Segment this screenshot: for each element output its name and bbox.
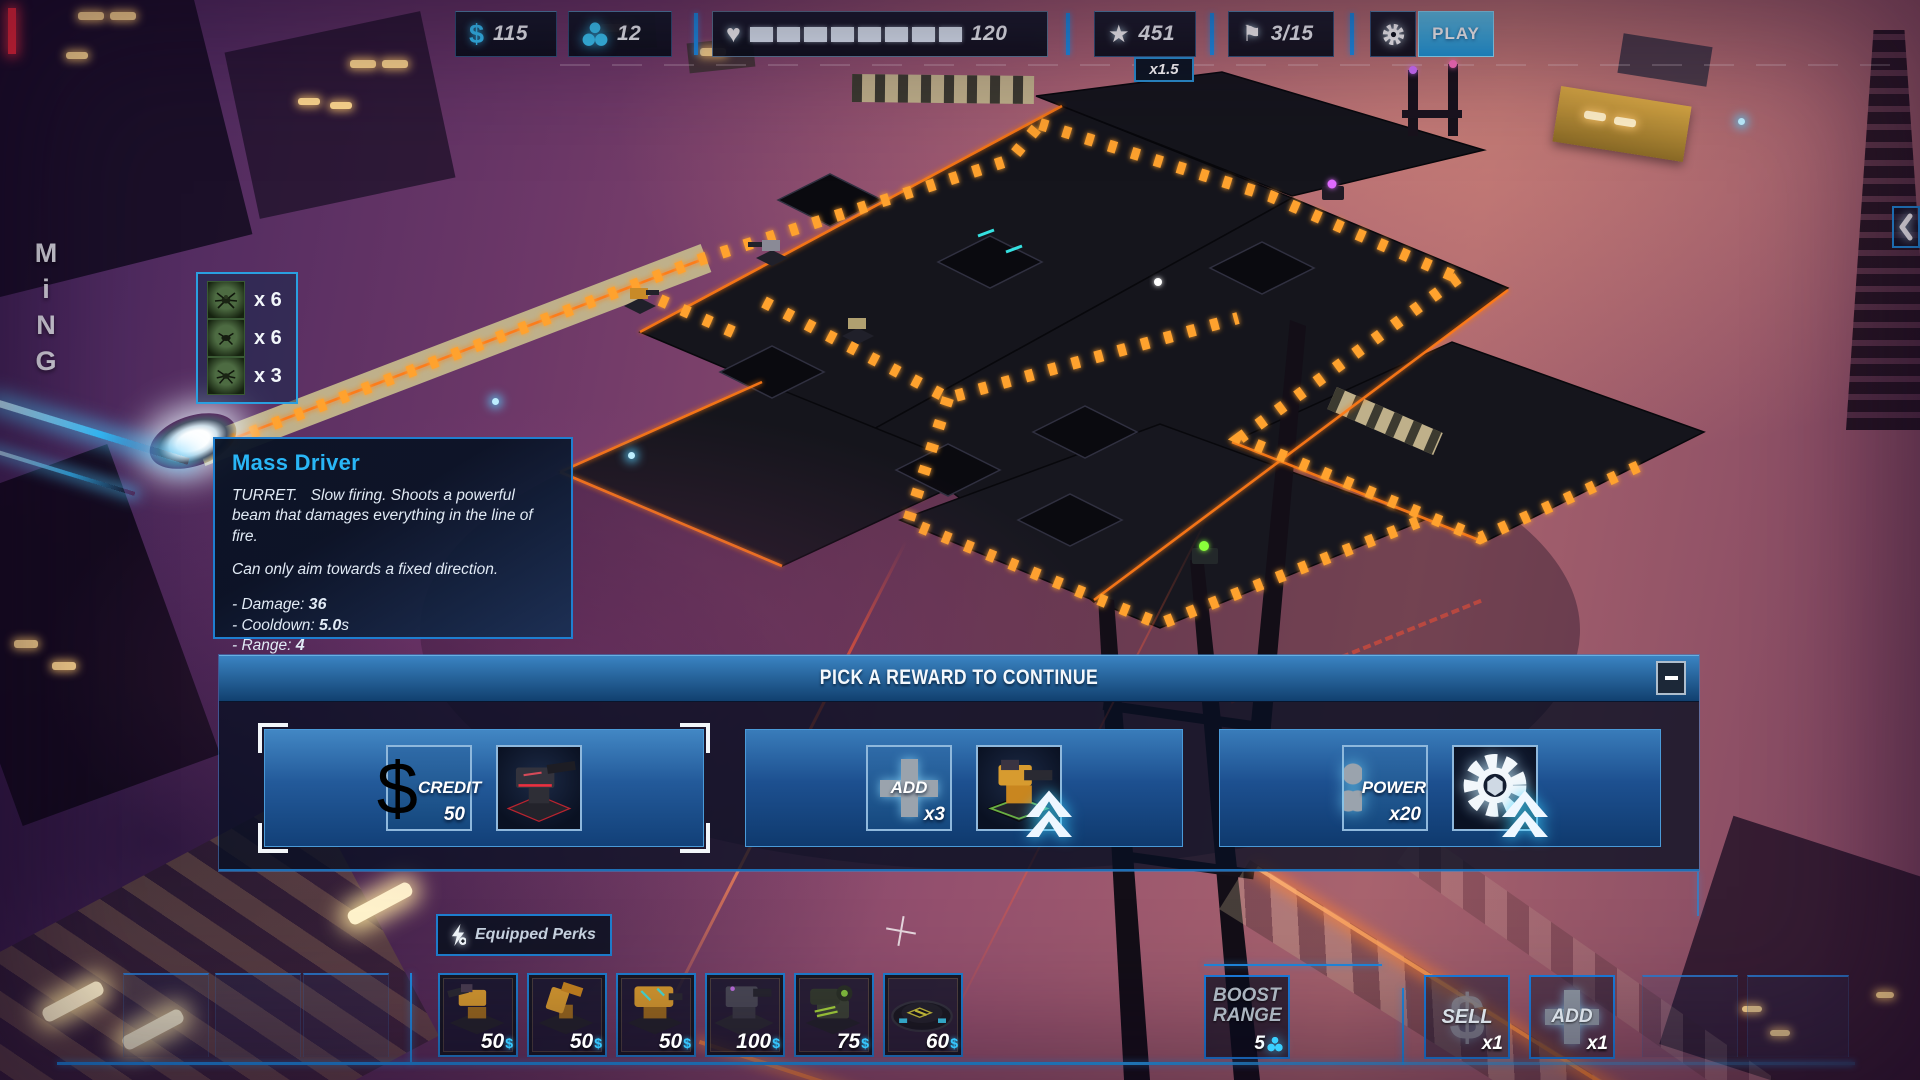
reward-panel-header: PICK A REWARD TO CONTINUE — [219, 655, 1699, 702]
reward-label: CREDIT — [418, 778, 481, 798]
enemy-spider-icon — [207, 281, 245, 319]
play-button-label: PLAY — [1432, 24, 1480, 44]
supply-icon — [1267, 1036, 1283, 1052]
reward-card-add-turret[interactable]: ADD x3 — [745, 729, 1183, 847]
sell-value: x1 — [1482, 1033, 1503, 1055]
price-tag: 75$ — [837, 1030, 869, 1054]
cyan-spark — [492, 398, 499, 405]
wave-progress-display: ⚑ 3/15 — [1228, 11, 1334, 57]
boost-value: 5 — [1254, 1033, 1265, 1055]
flag-icon: ⚑ — [1242, 21, 1262, 47]
topbar-divider — [1350, 13, 1354, 55]
hud-bottom-line — [57, 1062, 1855, 1065]
supply-value: 12 — [617, 22, 641, 46]
boost-range-button[interactable]: BOOSTRANGE 5 — [1204, 975, 1290, 1059]
collapse-panel-button[interactable] — [1892, 206, 1920, 248]
dollar-glyph: $ — [377, 746, 418, 831]
credit-reward-tile: $ CREDIT 50 — [386, 745, 472, 831]
stat-damage: - Damage: 36 — [232, 595, 554, 616]
stat-cooldown: - Cooldown: 5.0s — [232, 616, 554, 637]
cyan-spark — [628, 452, 635, 459]
credits-display: $ 115 — [455, 11, 557, 57]
turret-tooltip: Mass Driver TURRET. Slow firing. Shoots … — [213, 437, 573, 639]
score-display: ★ 451 — [1094, 11, 1196, 57]
play-button[interactable]: PLAY — [1418, 11, 1494, 57]
empty-slot[interactable] — [215, 973, 301, 1057]
wave-preview-panel: x 6 x 6 x 3 — [196, 272, 298, 404]
credit-icon: $ — [594, 1035, 602, 1051]
reward-amount: x20 — [1389, 804, 1421, 826]
game-screen: MiNG — [0, 0, 1920, 1080]
settings-button[interactable] — [1370, 11, 1416, 57]
price-tag: 100$ — [736, 1030, 780, 1054]
score-multiplier-badge: x1.5 — [1134, 57, 1194, 82]
reward-panel-body: $ CREDIT 50 — [219, 701, 1699, 871]
empty-slot[interactable] — [123, 973, 209, 1057]
shop-item-gun-turret[interactable]: 50$ — [438, 973, 518, 1057]
equipped-perks-button[interactable]: Equipped Perks — [436, 914, 612, 956]
reward-label: ADD — [891, 778, 928, 798]
star-icon: ★ — [1108, 20, 1130, 49]
credit-icon: $ — [683, 1035, 691, 1051]
shop-item-heavy-turret[interactable]: 100$ — [705, 973, 785, 1057]
supply-icon — [582, 21, 608, 47]
empty-slot[interactable] — [303, 973, 389, 1057]
price-tag: 60$ — [926, 1030, 958, 1054]
reward-panel-title: PICK A REWARD TO CONTINUE — [337, 655, 1580, 701]
selection-bracket — [258, 723, 288, 753]
hud-line — [1204, 964, 1382, 966]
power-preview-tile — [1452, 745, 1538, 831]
score-value: 451 — [1139, 22, 1176, 46]
add-value: x1 — [1587, 1033, 1608, 1055]
reward-label: POWER — [1362, 778, 1426, 798]
minimize-button[interactable] — [1656, 661, 1686, 695]
sell-label: SELL — [1441, 1007, 1492, 1028]
reward-amount: 50 — [444, 804, 465, 826]
shop-item-radar-turret[interactable]: 75$ — [794, 973, 874, 1057]
wave-count: x 6 — [254, 327, 282, 350]
cyan-spark — [1738, 118, 1745, 125]
reward-card-power[interactable]: POWER x20 — [1219, 729, 1661, 847]
health-value: 120 — [971, 22, 1008, 46]
upgrade-chevrons-icon — [1026, 783, 1072, 839]
selection-bracket — [680, 823, 710, 853]
hud-line — [1697, 872, 1699, 916]
shop-item-tesla-turret[interactable]: 50$ — [616, 973, 696, 1057]
supply-display: 12 — [568, 11, 672, 57]
tooltip-stats: - Damage: 36 - Cooldown: 5.0s - Range: 4 — [232, 595, 554, 657]
upgrade-chevrons-icon — [1502, 783, 1548, 839]
lightning-plus-icon — [450, 924, 466, 946]
turret-preview-tile — [976, 745, 1062, 831]
price-tag: 50$ — [570, 1030, 602, 1054]
turret-preview-tile — [496, 745, 582, 831]
credit-icon: $ — [505, 1035, 513, 1051]
shop-item-cannon-turret[interactable]: 50$ — [527, 973, 607, 1057]
credit-icon: $ — [950, 1035, 958, 1051]
corner-towers — [1402, 60, 1462, 136]
selection-bracket — [258, 823, 288, 853]
wave-preview-row: x 6 — [207, 319, 287, 357]
selection-bracket — [680, 723, 710, 753]
health-display: ♥ 120 — [712, 11, 1048, 57]
add-button[interactable]: ADD x1 — [1529, 975, 1615, 1059]
credit-icon: $ — [772, 1035, 780, 1051]
dark-turret-sprite — [498, 747, 580, 829]
credit-icon: $ — [861, 1035, 869, 1051]
tooltip-note: Can only aim towards a fixed direction. — [232, 560, 554, 580]
hud-line — [410, 973, 412, 1065]
price-tag: 50$ — [481, 1030, 513, 1054]
reward-amount: x3 — [924, 804, 945, 826]
tooltip-description: TURRET. Slow firing. Shoots a powerful b… — [232, 486, 554, 547]
topbar-divider — [1210, 13, 1214, 55]
wave-count: x 3 — [254, 365, 282, 388]
topbar-divider — [694, 13, 698, 55]
minus-icon — [1665, 676, 1678, 680]
crosshair-mark — [884, 914, 919, 949]
sell-button[interactable]: $ SELL x1 — [1424, 975, 1510, 1059]
gear-icon — [1380, 21, 1407, 48]
credits-value: 115 — [493, 22, 528, 46]
boost-label: BOOST — [1213, 985, 1281, 1006]
power-reward-tile: POWER x20 — [1342, 745, 1428, 831]
enemy-spider-icon — [207, 357, 245, 395]
heart-icon: ♥ — [726, 20, 741, 49]
empty-slot[interactable] — [1642, 975, 1738, 1057]
shop-item-mine-platform[interactable]: 60$ — [883, 973, 963, 1057]
empty-slot[interactable] — [1747, 975, 1849, 1057]
wave-count: x 6 — [254, 289, 282, 312]
enemy-crawler-icon — [207, 319, 245, 357]
wave-progress-value: 3/15 — [1271, 22, 1314, 46]
price-tag: 50$ — [659, 1030, 691, 1054]
wave-preview-row: x 6 — [207, 281, 287, 319]
wave-preview-row: x 3 — [207, 357, 287, 395]
equipped-perks-label: Equipped Perks — [475, 926, 596, 944]
turret-shop-row: 50$ 50$ 50$ 100$ 75$ 60$ — [438, 973, 963, 1057]
chevron-left-icon — [1897, 212, 1915, 242]
topbar-divider — [1066, 13, 1070, 55]
hud-line — [1402, 988, 1404, 1065]
power-core-glyph — [1344, 761, 1362, 815]
reward-panel: PICK A REWARD TO CONTINUE $ CREDIT 50 — [218, 654, 1700, 872]
add-reward-tile: ADD x3 — [866, 745, 952, 831]
health-bar — [750, 27, 962, 42]
reward-card-credit[interactable]: $ CREDIT 50 — [264, 729, 704, 847]
add-label: ADD — [1551, 1007, 1592, 1027]
tooltip-title: Mass Driver — [232, 450, 554, 476]
dollar-icon: $ — [469, 19, 484, 50]
